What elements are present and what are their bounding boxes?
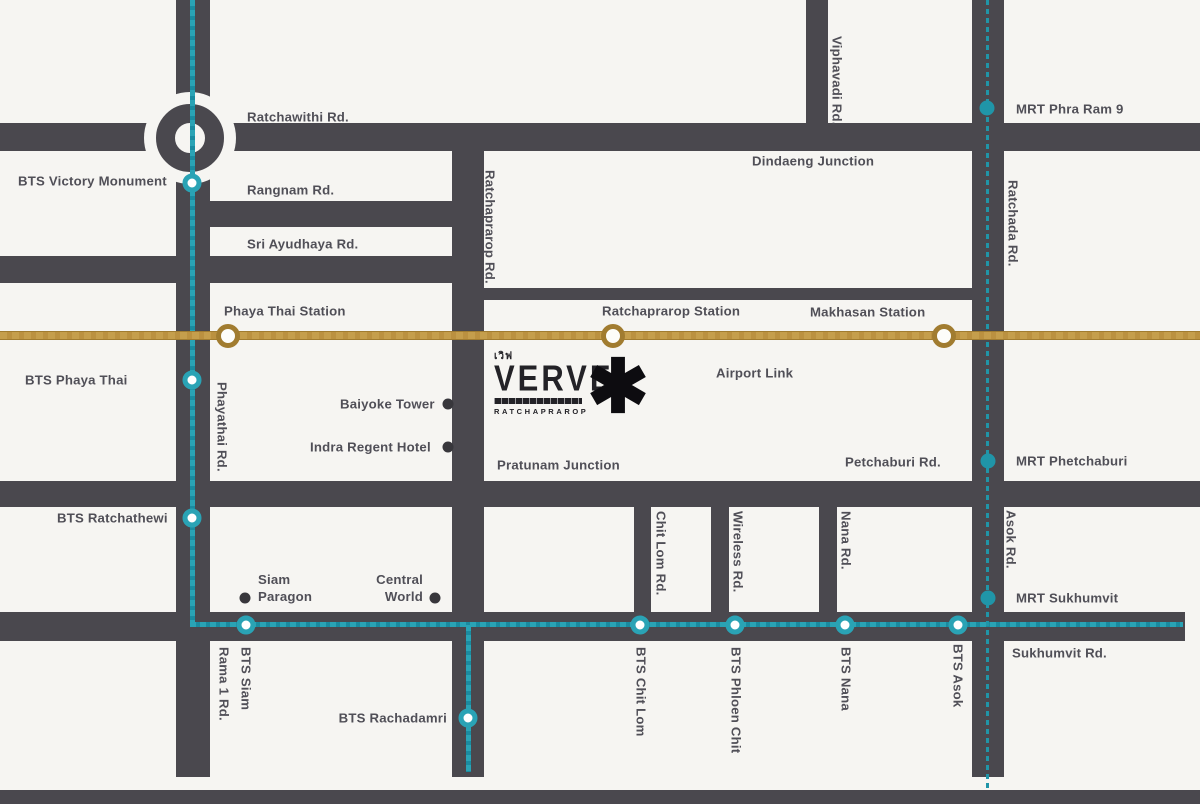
bts-ratchathewi-station-marker: [183, 509, 202, 528]
mrt-phra-ram-9-station-marker: [980, 101, 995, 116]
road-above-airport-link: [452, 288, 973, 300]
verve-logo-bar: [494, 398, 582, 404]
label-viphavadi-rd: Viphavadi Rd.: [830, 36, 845, 126]
label-bts-siam: BTS Siam: [239, 647, 254, 710]
label-ratchawithi-rd: Ratchawithi Rd.: [247, 110, 349, 125]
label-asok-rd: Asok Rd.: [1004, 510, 1019, 569]
road-bottom-edge: [0, 790, 1200, 804]
bts-line-rachadamri-branch: [466, 625, 471, 772]
label-ratchaprarop-rd: Ratchaprarop Rd.: [483, 170, 498, 284]
label-makhasan-station: Makhasan Station: [810, 305, 925, 320]
label-central-world-line1: Central: [353, 571, 423, 588]
label-siam-paragon: Siam Paragon: [258, 571, 312, 605]
bts-siam-station-marker: [237, 616, 256, 635]
road-viphavadi: [806, 0, 828, 123]
label-indra-regent-hotel: Indra Regent Hotel: [310, 440, 431, 455]
mrt-sukhumvit-station-marker: [981, 591, 996, 606]
label-baiyoke-tower: Baiyoke Tower: [340, 397, 435, 412]
label-siam-paragon-line2: Paragon: [258, 588, 312, 605]
label-nana-rd: Nana Rd.: [839, 511, 854, 570]
bts-rachadamri-station-marker: [459, 709, 478, 728]
road-stub-wireless: [711, 507, 729, 612]
label-wireless-rd: Wireless Rd.: [731, 511, 746, 592]
label-pratunam-junction: Pratunam Junction: [497, 458, 620, 473]
label-chit-lom-rd: Chit Lom Rd.: [654, 511, 669, 595]
bts-victory-monument-station-marker: [183, 174, 202, 193]
bts-chit-lom-station-marker: [631, 616, 650, 635]
airport-link-phaya-thai-station-marker: [216, 324, 240, 348]
label-sri-ayudhaya-rd: Sri Ayudhaya Rd.: [247, 237, 358, 252]
baiyoke-tower-poi-dot: [443, 399, 454, 410]
transit-location-map: BTS Victory Monument Ratchawithi Rd. Ran…: [0, 0, 1200, 804]
bts-phloen-chit-station-marker: [726, 616, 745, 635]
airport-link-makhasan-station-marker: [932, 324, 956, 348]
label-bts-rachadamri: BTS Rachadamri: [337, 711, 447, 726]
label-mrt-phra-ram-9: MRT Phra Ram 9: [1016, 102, 1124, 117]
label-siam-paragon-line1: Siam: [258, 571, 312, 588]
central-world-poi-dot: [430, 593, 441, 604]
label-rama-1-rd: Rama 1 Rd.: [217, 647, 232, 721]
siam-paragon-poi-dot: [240, 593, 251, 604]
bts-line-vertical: [190, 0, 195, 625]
label-sukhumvit-rd: Sukhumvit Rd.: [1012, 646, 1107, 661]
label-mrt-phetchaburi: MRT Phetchaburi: [1016, 454, 1127, 469]
road-stub-chit-lom: [634, 507, 651, 612]
label-bts-phaya-thai: BTS Phaya Thai: [25, 373, 127, 388]
bts-phaya-thai-station-marker: [183, 371, 202, 390]
mrt-phetchaburi-station-marker: [981, 454, 996, 469]
label-ratchaprarop-station: Ratchaprarop Station: [602, 304, 740, 319]
airport-link-line: [0, 331, 1200, 340]
bts-line-sukhumvit: [190, 622, 1183, 627]
label-phayathai-rd: Phayathai Rd.: [215, 382, 230, 472]
label-bts-phloen-chit: BTS Phloen Chit: [729, 647, 744, 753]
road-sri-ayudhaya: [0, 256, 452, 283]
verve-location-asterisk-marker: ✱: [587, 350, 649, 424]
label-dindaeng-junction: Dindaeng Junction: [752, 154, 874, 169]
label-bts-chit-lom: BTS Chit Lom: [634, 647, 649, 737]
label-airport-link: Airport Link: [716, 366, 793, 381]
label-central-world: Central World: [353, 571, 423, 605]
label-rangnam-rd: Rangnam Rd.: [247, 183, 334, 198]
label-bts-victory-monument: BTS Victory Monument: [18, 174, 167, 189]
road-rangnam: [210, 201, 452, 227]
road-stub-nana: [819, 507, 837, 612]
label-bts-ratchathewi: BTS Ratchathewi: [57, 511, 168, 526]
bts-nana-station-marker: [836, 616, 855, 635]
label-phaya-thai-station: Phaya Thai Station: [224, 304, 346, 319]
label-petchaburi-rd: Petchaburi Rd.: [845, 455, 941, 470]
label-ratchada-rd: Ratchada Rd.: [1006, 180, 1021, 267]
bts-asok-station-marker: [949, 616, 968, 635]
label-mrt-sukhumvit: MRT Sukhumvit: [1016, 591, 1118, 606]
mrt-line-dashed: [986, 0, 989, 790]
label-central-world-line2: World: [353, 588, 423, 605]
label-bts-asok: BTS Asok: [951, 644, 966, 707]
label-bts-nana: BTS Nana: [839, 647, 854, 711]
indra-regent-hotel-poi-dot: [443, 442, 454, 453]
